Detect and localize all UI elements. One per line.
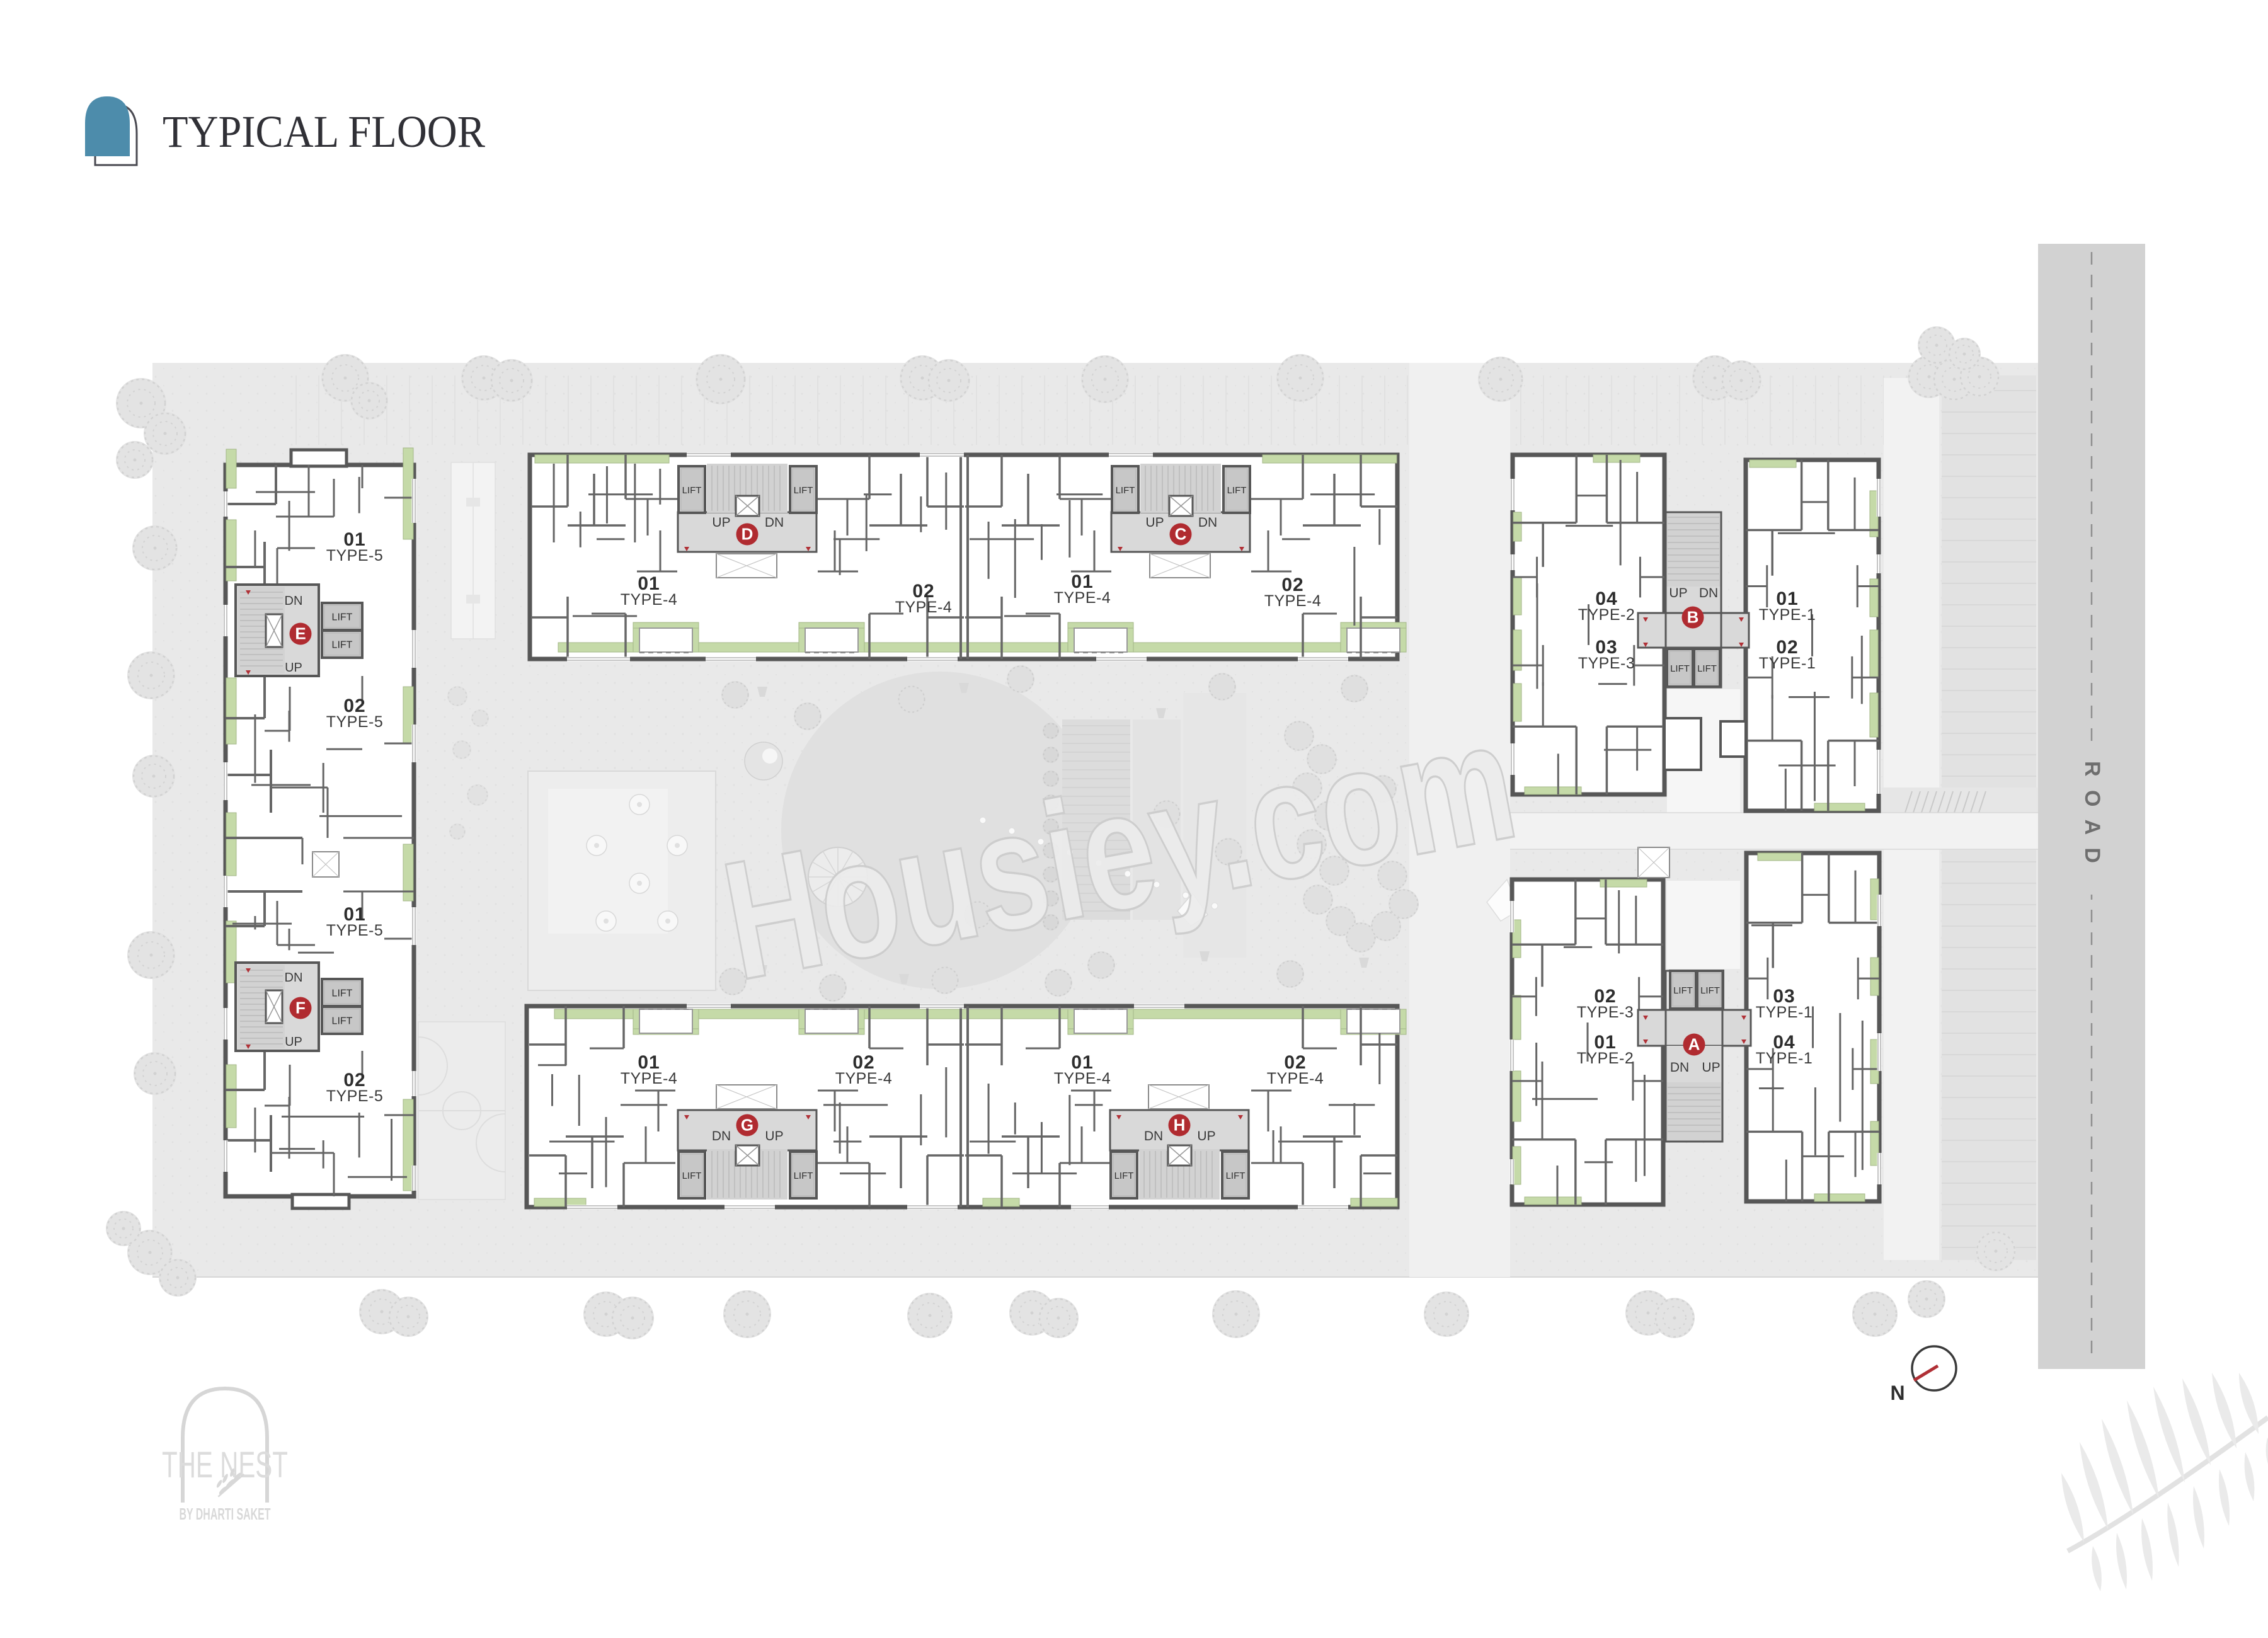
svg-text:TYPE-4: TYPE-4 bbox=[621, 591, 678, 609]
svg-text:LIFT: LIFT bbox=[794, 1171, 813, 1181]
svg-text:TYPE-4: TYPE-4 bbox=[835, 1070, 893, 1087]
svg-text:C: C bbox=[1175, 525, 1187, 544]
svg-text:LIFT: LIFT bbox=[682, 485, 702, 496]
svg-text:LIFT: LIFT bbox=[1697, 663, 1717, 674]
svg-text:TYPE-4: TYPE-4 bbox=[621, 1070, 678, 1087]
svg-text:TYPE-4: TYPE-4 bbox=[895, 598, 953, 616]
svg-text:LIFT: LIFT bbox=[1114, 1171, 1134, 1181]
svg-text:LIFT: LIFT bbox=[332, 1016, 353, 1027]
svg-text:LIFT: LIFT bbox=[332, 988, 353, 999]
svg-text:DN: DN bbox=[1699, 586, 1718, 600]
svg-text:A: A bbox=[1688, 1035, 1700, 1054]
svg-text:UP: UP bbox=[712, 515, 730, 530]
svg-text:UP: UP bbox=[285, 1035, 302, 1049]
svg-text:TYPE-5: TYPE-5 bbox=[326, 547, 384, 564]
svg-text:TYPE-4: TYPE-4 bbox=[1264, 592, 1322, 610]
svg-text:UP: UP bbox=[1669, 586, 1687, 600]
svg-text:F: F bbox=[295, 999, 306, 1017]
svg-text:UP: UP bbox=[1702, 1060, 1720, 1075]
svg-text:DN: DN bbox=[765, 515, 784, 530]
svg-text:TYPE-1: TYPE-1 bbox=[1759, 655, 1816, 672]
svg-text:BY DHARTI SAKET: BY DHARTI SAKET bbox=[180, 1504, 271, 1523]
svg-text:TYPE-5: TYPE-5 bbox=[326, 1087, 384, 1105]
svg-text:TYPE-5: TYPE-5 bbox=[326, 922, 384, 939]
svg-text:TYPE-5: TYPE-5 bbox=[326, 713, 384, 731]
svg-text:LIFT: LIFT bbox=[1116, 485, 1135, 496]
svg-text:E: E bbox=[295, 624, 306, 643]
svg-text:LIFT: LIFT bbox=[1700, 985, 1720, 996]
svg-text:D: D bbox=[742, 525, 753, 544]
svg-text:LIFT: LIFT bbox=[1673, 985, 1693, 996]
svg-text:DN: DN bbox=[712, 1129, 731, 1143]
svg-text:B: B bbox=[1687, 608, 1699, 627]
svg-text:UP: UP bbox=[1145, 515, 1164, 530]
svg-text:G: G bbox=[741, 1116, 753, 1135]
svg-text:LIFT: LIFT bbox=[1670, 663, 1690, 674]
svg-text:TYPE-4: TYPE-4 bbox=[1054, 1070, 1111, 1087]
svg-text:TYPE-3: TYPE-3 bbox=[1577, 1004, 1634, 1021]
svg-text:UP: UP bbox=[285, 661, 302, 675]
svg-text:UP: UP bbox=[1197, 1129, 1215, 1143]
svg-text:LIFT: LIFT bbox=[1226, 1171, 1246, 1181]
svg-text:LIFT: LIFT bbox=[682, 1171, 702, 1181]
svg-text:R O A D: R O A D bbox=[2080, 761, 2104, 867]
svg-text:TYPE-1: TYPE-1 bbox=[1756, 1050, 1813, 1067]
svg-text:DN: DN bbox=[1198, 515, 1217, 530]
svg-text:LIFT: LIFT bbox=[332, 640, 353, 651]
svg-text:H: H bbox=[1174, 1116, 1186, 1135]
svg-text:LIFT: LIFT bbox=[794, 485, 813, 496]
svg-text:TYPE-1: TYPE-1 bbox=[1756, 1004, 1813, 1021]
svg-text:LIFT: LIFT bbox=[332, 612, 353, 623]
svg-text:DN: DN bbox=[1144, 1129, 1163, 1143]
svg-text:N: N bbox=[1890, 1382, 1904, 1404]
svg-text:TYPE-4: TYPE-4 bbox=[1054, 589, 1111, 607]
svg-text:TYPE-2: TYPE-2 bbox=[1577, 1050, 1634, 1067]
svg-text:LIFT: LIFT bbox=[1227, 485, 1247, 496]
svg-text:UP: UP bbox=[765, 1129, 783, 1143]
svg-text:DN: DN bbox=[1670, 1060, 1689, 1075]
svg-text:TYPICAL FLOOR: TYPICAL FLOOR bbox=[163, 106, 485, 157]
svg-text:TYPE-2: TYPE-2 bbox=[1578, 606, 1635, 624]
svg-text:TYPE-3: TYPE-3 bbox=[1578, 655, 1635, 672]
svg-text:TYPE-1: TYPE-1 bbox=[1759, 606, 1816, 624]
svg-text:TYPE-4: TYPE-4 bbox=[1267, 1070, 1324, 1087]
svg-text:DN: DN bbox=[285, 971, 303, 985]
svg-text:DN: DN bbox=[285, 594, 303, 608]
